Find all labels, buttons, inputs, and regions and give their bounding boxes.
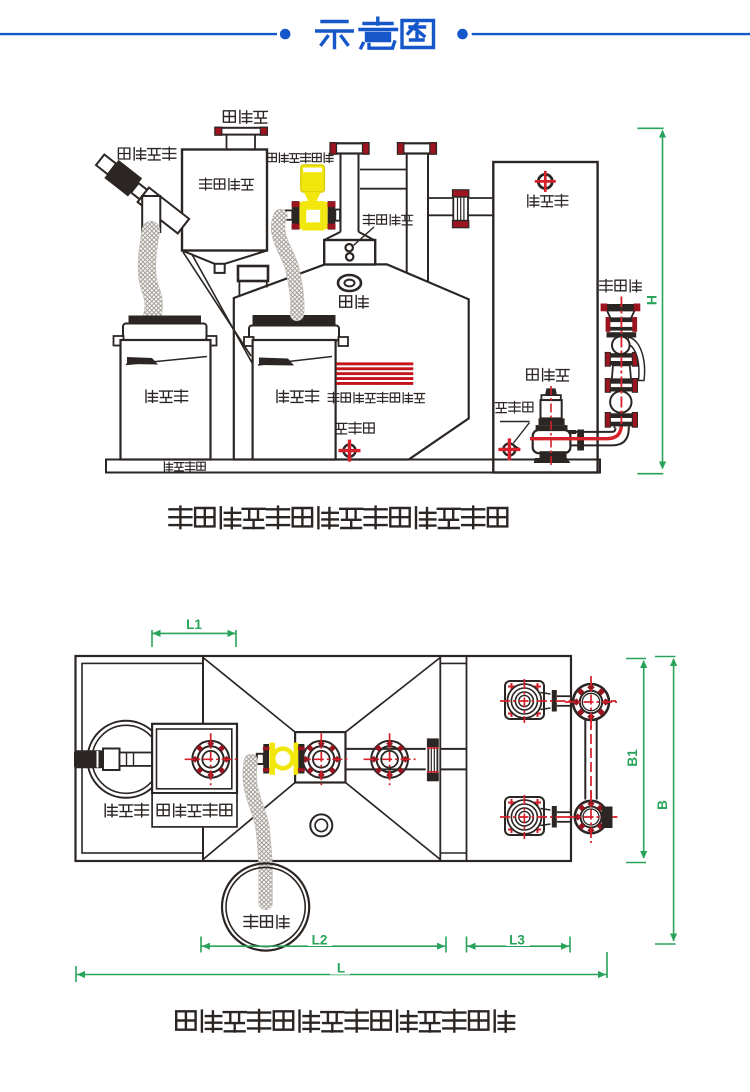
svg-text:L3: L3	[509, 933, 525, 948]
svg-text:B1: B1	[625, 749, 640, 767]
svg-text:H: H	[644, 295, 660, 305]
svg-text:L2: L2	[312, 933, 328, 948]
svg-text:L1: L1	[186, 617, 202, 632]
svg-text:L: L	[337, 961, 345, 976]
svg-text:B: B	[655, 800, 670, 810]
